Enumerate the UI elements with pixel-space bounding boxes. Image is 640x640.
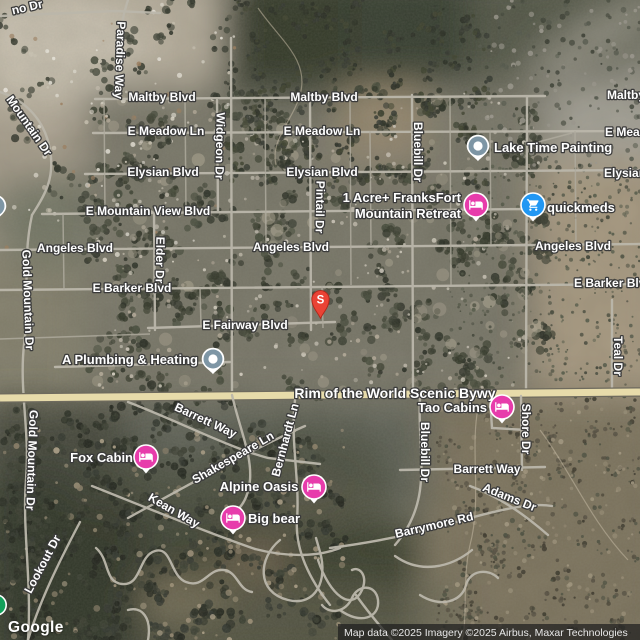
svg-text:E Barker Blvd: E Barker Blvd	[93, 281, 172, 295]
svg-text:Elder Dr: Elder Dr	[153, 237, 168, 284]
svg-text:Maltby Blvd: Maltby Blvd	[290, 90, 357, 104]
svg-text:Google: Google	[8, 619, 64, 636]
svg-text:Shore Dr: Shore Dr	[519, 404, 533, 455]
svg-text:Big bear: Big bear	[248, 511, 300, 526]
svg-text:Angeles Blvd: Angeles Blvd	[37, 241, 113, 255]
svg-text:Maltby Blvd: Maltby Blvd	[128, 90, 195, 104]
svg-text:E Meadow Ln: E Meadow Ln	[128, 124, 205, 138]
svg-text:Bluebill Dr: Bluebill Dr	[418, 422, 432, 482]
svg-text:Rim of the World Scenic Bywy: Rim of the World Scenic Bywy	[294, 385, 495, 401]
svg-text:Paradise Way: Paradise Way	[112, 21, 129, 99]
svg-text:Mountain Retreat: Mountain Retreat	[355, 206, 462, 221]
svg-text:E Barker Blvd: E Barker Blvd	[574, 276, 640, 290]
svg-text:Elysian B: Elysian B	[604, 166, 640, 180]
svg-text:Lake Time Painting: Lake Time Painting	[494, 140, 612, 155]
svg-text:Pintail Dr: Pintail Dr	[313, 181, 328, 234]
svg-text:Tao Cabins: Tao Cabins	[418, 400, 487, 415]
svg-text:Map data ©2025 Imagery ©2025 A: Map data ©2025 Imagery ©2025 Airbus, Max…	[344, 627, 628, 639]
svg-text:Angeles Blvd: Angeles Blvd	[535, 239, 611, 253]
svg-text:Fox Cabin: Fox Cabin	[70, 450, 133, 465]
svg-text:E Meadow L: E Meadow L	[605, 125, 640, 139]
svg-text:Barrett Way: Barrett Way	[454, 462, 521, 476]
svg-text:E Meadow Ln: E Meadow Ln	[284, 124, 361, 138]
svg-text:Angeles Blvd: Angeles Blvd	[253, 240, 329, 254]
svg-text:S: S	[317, 294, 325, 306]
svg-text:Widgeon Dr: Widgeon Dr	[212, 112, 227, 180]
svg-text:E Fairway Blvd: E Fairway Blvd	[202, 318, 287, 332]
svg-text:Elysian Blvd: Elysian Blvd	[286, 165, 357, 179]
svg-text:1 Acre+ FranksFort: 1 Acre+ FranksFort	[343, 190, 462, 205]
svg-text:Maltby Blvd: Maltby Blvd	[607, 88, 640, 102]
svg-text:A Plumbing & Heating: A Plumbing & Heating	[62, 352, 198, 367]
svg-text:Alpine Oasis: Alpine Oasis	[220, 479, 299, 494]
svg-text:Bluebill Dr: Bluebill Dr	[411, 122, 425, 182]
svg-text:Elysian Blvd: Elysian Blvd	[127, 165, 198, 179]
svg-text:Teal Dr: Teal Dr	[611, 336, 625, 376]
svg-text:quickmeds: quickmeds	[547, 200, 615, 215]
svg-text:E Mountain View Blvd: E Mountain View Blvd	[86, 204, 210, 218]
